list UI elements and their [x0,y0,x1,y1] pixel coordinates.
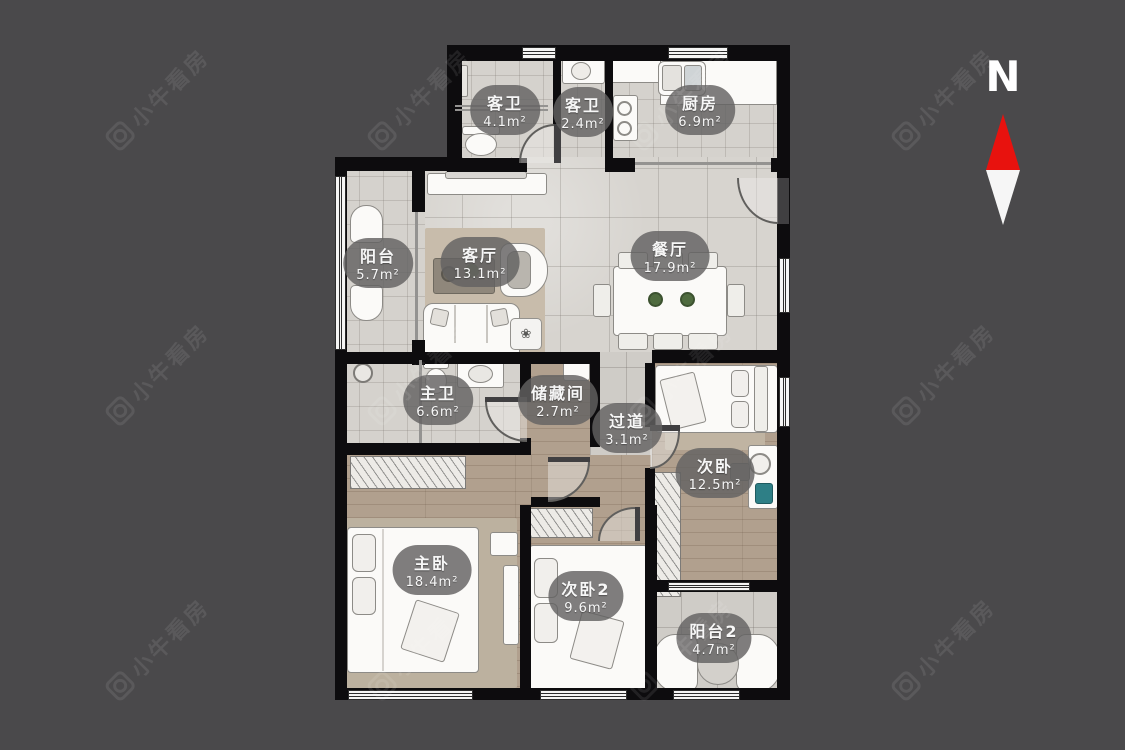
room-name: 次卧2 [561,576,610,600]
room-label-dining-room: 餐厅 17.9m² [631,231,710,281]
watermark-logo-icon [103,119,137,153]
wall-kitchen-bottom-right [771,158,790,172]
toilet-bowl-icon [465,133,497,156]
dining-chair [618,333,648,350]
room-area: 2.7m² [531,405,585,420]
room-label-living-room: 客厅 13.1m² [441,237,520,287]
wall-mid-left [335,352,600,364]
watermark-text: 小牛看房 [908,315,1001,408]
wardrobe [350,456,466,489]
window-bedroom2-right [779,377,790,427]
room-name: 主卫 [416,380,460,404]
room-area: 12.5m² [689,478,742,493]
headboard [754,366,768,432]
room-area: 6.6m² [416,405,460,420]
wall-bedroom3-right [645,505,657,700]
dining-chair [593,284,611,317]
side-table-with-plant: ❀ [510,318,542,350]
dining-chair [653,333,683,350]
room-label-bedroom-2: 次卧 12.5m² [676,448,755,498]
dining-chair [727,284,745,317]
room-area: 4.1m² [483,115,527,130]
bedroom-bench [503,565,519,645]
burner-icon [617,101,632,116]
wall-corridor-right-b [645,468,655,508]
pillow [352,534,376,572]
watermark-logo-icon [889,394,923,428]
room-area: 2.4m² [561,117,605,132]
watermark-logo-icon [103,669,137,703]
sofa-seam [486,305,488,343]
kitchen-sliding-door [635,162,771,165]
room-label-kitchen: 厨房 6.9m² [665,85,735,135]
nightstand [490,532,518,556]
window-top-kitchen [668,47,728,59]
room-label-bedroom-3: 次卧2 9.6m² [548,571,623,621]
window-bedroom3-bottom [540,690,627,700]
sofa-pillow [429,307,449,327]
watermark: 小牛看房 [100,315,215,430]
wall-masterbath-bottom [335,443,531,455]
wall-bedroom2-top [652,350,790,363]
watermark: 小牛看房 [886,315,1001,430]
window-balcony2-top [668,582,750,591]
room-name: 客厅 [454,242,507,266]
watermark-text: 小牛看房 [122,40,215,133]
watermark-logo-icon [889,119,923,153]
entry-door-leaf [778,178,789,224]
window-balcony2-bottom [673,690,740,700]
table-plant-icon [648,292,663,307]
room-name: 餐厅 [644,236,697,260]
desk-book [755,483,773,504]
watermark: 小牛看房 [100,590,215,705]
room-label-guest-bath-1: 客卫 4.1m² [470,85,540,135]
room-area: 5.7m² [356,268,400,283]
north-compass: N [955,52,1051,242]
balcony-chair [350,285,383,321]
room-label-storage: 储藏间 2.7m² [518,375,598,425]
balcony-sliding-door [415,212,418,340]
sofa-seam [454,305,456,343]
wardrobe [653,472,681,597]
room-area: 13.1m² [454,267,507,282]
room-name: 阳台 [356,243,400,267]
room-label-master-bedroom: 主卧 18.4m² [393,545,472,595]
room-name: 过道 [605,408,649,432]
watermark-text: 小牛看房 [122,315,215,408]
room-name: 阳台2 [689,618,738,642]
bed-sheet-line [382,529,384,671]
shower-head-icon [353,363,373,383]
room-name: 主卧 [406,550,459,574]
dining-chair [688,333,718,350]
table-plant-icon [680,292,695,307]
watermark: 小牛看房 [100,40,215,155]
room-label-master-bath: 主卫 6.6m² [403,375,473,425]
room-area: 4.7m² [689,643,738,658]
tv-icon [445,171,527,179]
room-name: 客卫 [561,92,605,116]
watermark-text: 小牛看房 [122,590,215,683]
wall-kitchen-bottom-left [605,158,635,172]
room-name: 次卧 [689,453,742,477]
north-label: N [955,52,1051,101]
room-area: 17.9m² [644,261,697,276]
window-top-1 [522,47,556,59]
basin-icon [571,62,591,80]
bedroom-3-door-leaf [635,507,640,541]
wall-top [447,45,790,61]
burner-icon [617,121,632,136]
wall-balcony-top [335,157,455,171]
room-area: 9.6m² [561,601,610,616]
pillow [731,401,749,428]
floor-plan: ❀ [335,45,790,700]
basin-icon [468,365,493,383]
pillow [352,577,376,615]
room-area: 3.1m² [605,433,649,448]
room-label-guest-bath-2: 客卫 2.4m² [553,87,613,137]
compass-arrow-south-icon [986,170,1020,225]
room-name: 客卫 [483,90,527,114]
room-label-corridor: 过道 3.1m² [592,403,662,453]
room-label-balcony: 阳台 5.7m² [343,238,413,288]
room-name: 储藏间 [531,380,585,404]
wall-balcony-divider-top [412,170,425,212]
wall-bedroom3-top [531,497,600,507]
compass-arrow-north-icon [986,114,1020,170]
pillow [731,370,749,397]
watermark-logo-icon [103,394,137,428]
room-area: 6.9m² [678,115,722,130]
wall-master-bedroom3 [520,505,531,700]
watermark-text: 小牛看房 [908,590,1001,683]
window-dining-right [779,258,790,313]
room-area: 18.4m² [406,575,459,590]
sofa-pillow [490,308,510,328]
wardrobe [530,508,593,538]
screenshot-stage: ❀ [0,0,1125,750]
watermark: 小牛看房 [886,590,1001,705]
window-master-bottom [348,690,473,700]
wall-right [777,45,790,700]
watermark-logo-icon [889,669,923,703]
wall-baths-bottom [447,158,527,172]
room-label-balcony-2: 阳台2 4.7m² [676,613,751,663]
room-name: 厨房 [678,90,722,114]
master-bedroom-door-leaf [548,457,590,462]
